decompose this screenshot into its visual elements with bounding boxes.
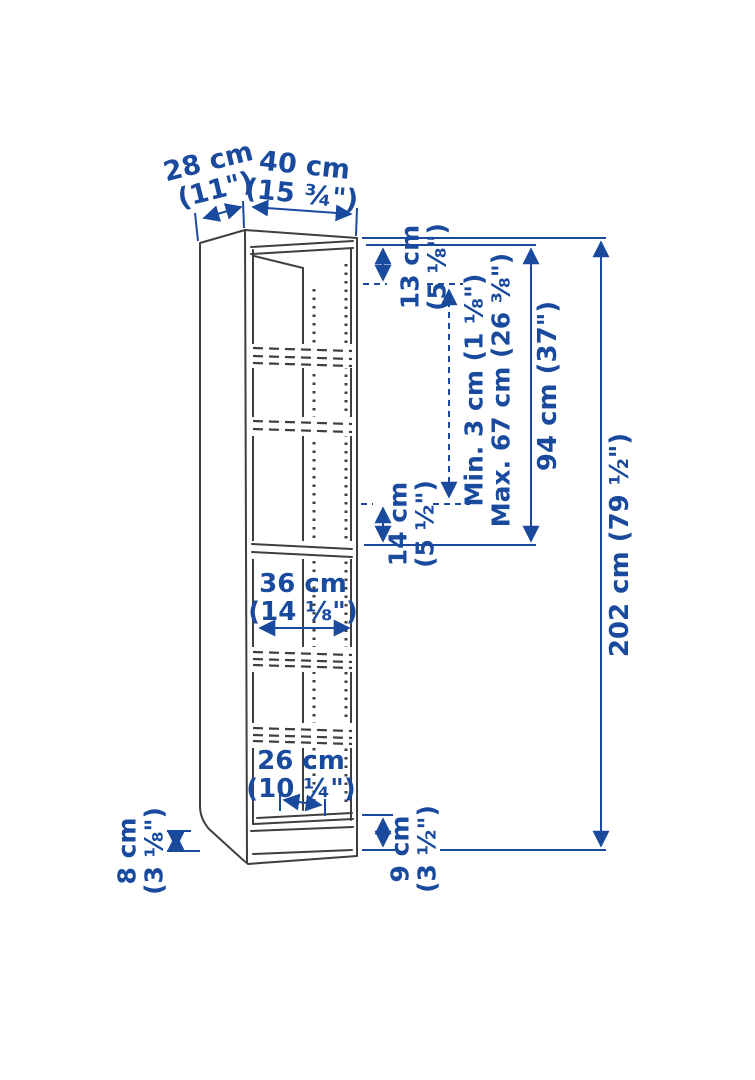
total-height-dimension-label: 202 cm (79 ½") [607, 433, 635, 657]
width-dimension-label: 40 cm (15 ¾") [243, 146, 362, 215]
bookcase-dimension-diagram: 28 cm (11") 40 cm (15 ¾") 13 cm (5 ⅛") M… [0, 0, 755, 1080]
arrow-depth-28 [204, 207, 241, 218]
inner-depth-dimension-label: 26 cm (10 ¼") [246, 748, 355, 804]
top-gap-dimension-label: 13 cm (5 ⅛") [397, 223, 451, 311]
bookcase-line-art [0, 0, 755, 1080]
plinth-front-dimension-label: 9 cm (3 ½") [387, 805, 441, 893]
above-fixed-shelf-dimension-label: 14 cm (5 ½") [385, 480, 439, 568]
plinth-side-dimension-label: 8 cm (3 ⅛") [114, 807, 168, 895]
shelf-range-dimension-label: Min. 3 cm (1 ⅛") Max. 67 cm (26 ⅜") [461, 253, 515, 527]
bottom-shelf-and-plinth [251, 813, 353, 854]
upper-section-dimension-label: 94 cm (37") [535, 301, 563, 471]
inner-width-dimension-label: 36 cm (14 ⅛") [248, 571, 357, 627]
